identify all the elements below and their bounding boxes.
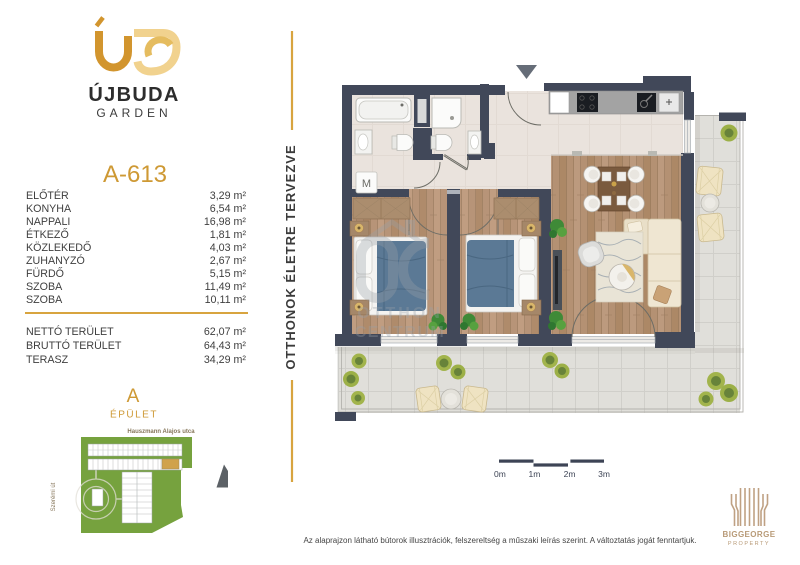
svg-text:NETTÓ TERÜLET: NETTÓ TERÜLET [26, 325, 114, 338]
svg-text:6,54 m²: 6,54 m² [210, 203, 247, 215]
svg-text:10,11 m²: 10,11 m² [205, 294, 247, 306]
svg-text:11,49 m²: 11,49 m² [205, 281, 247, 293]
svg-text:NAPPALI: NAPPALI [26, 216, 70, 228]
svg-text:3,29 m²: 3,29 m² [210, 190, 247, 202]
svg-text:1,81 m²: 1,81 m² [210, 229, 247, 241]
svg-text:A-613: A-613 [103, 161, 167, 188]
svg-text:BIGGEORGE: BIGGEORGE [723, 530, 776, 539]
svg-text:OTTHONOK ÉLETRE TERVEZVE: OTTHONOK ÉLETRE TERVEZVE [283, 144, 298, 369]
svg-text:Hauszmann Alajos utca: Hauszmann Alajos utca [127, 429, 195, 435]
svg-text:CENTRUM: CENTRUM [355, 324, 446, 341]
svg-text:GARDEN: GARDEN [96, 106, 171, 120]
svg-text:ÚJBUDA: ÚJBUDA [88, 82, 179, 106]
svg-text:5,15 m²: 5,15 m² [210, 268, 247, 280]
svg-text:ZUHANYZÓ: ZUHANYZÓ [26, 254, 85, 267]
svg-text:2m: 2m [564, 469, 576, 479]
svg-text:SZOBA: SZOBA [26, 281, 63, 293]
svg-text:ELŐTÉR: ELŐTÉR [26, 188, 69, 202]
svg-text:ÉPÜLET: ÉPÜLET [110, 408, 158, 421]
svg-text:0m: 0m [494, 469, 506, 479]
svg-text:16,98 m²: 16,98 m² [204, 216, 247, 228]
svg-text:PROPERTY: PROPERTY [728, 541, 770, 547]
svg-text:KONYHA: KONYHA [26, 203, 72, 215]
svg-text:BRUTTÓ TERÜLET: BRUTTÓ TERÜLET [26, 339, 122, 352]
svg-text:ÉTKEZŐ: ÉTKEZŐ [26, 227, 69, 241]
svg-text:TERASZ: TERASZ [26, 354, 69, 366]
svg-text:62,07 m²: 62,07 m² [204, 326, 247, 338]
svg-text:SZOBA: SZOBA [26, 294, 63, 306]
svg-text:3m: 3m [598, 469, 610, 479]
svg-text:64,43 m²: 64,43 m² [204, 340, 247, 352]
svg-text:KÖZLEKEDŐ: KÖZLEKEDŐ [26, 240, 91, 254]
svg-text:4,03 m²: 4,03 m² [210, 242, 247, 254]
svg-text:Szerémi út: Szerémi út [51, 482, 57, 511]
svg-text:M: M [362, 178, 371, 190]
svg-text:A: A [127, 386, 140, 407]
svg-text:Az alaprajzon látható bútorok: Az alaprajzon látható bútorok illusztrác… [303, 536, 696, 545]
svg-text:FÜRDŐ: FÜRDŐ [26, 266, 64, 280]
svg-text:1m: 1m [528, 469, 540, 479]
svg-text:34,29 m²: 34,29 m² [204, 354, 247, 366]
svg-text:OTTHON: OTTHON [357, 305, 443, 322]
svg-text:2,67 m²: 2,67 m² [210, 255, 247, 267]
